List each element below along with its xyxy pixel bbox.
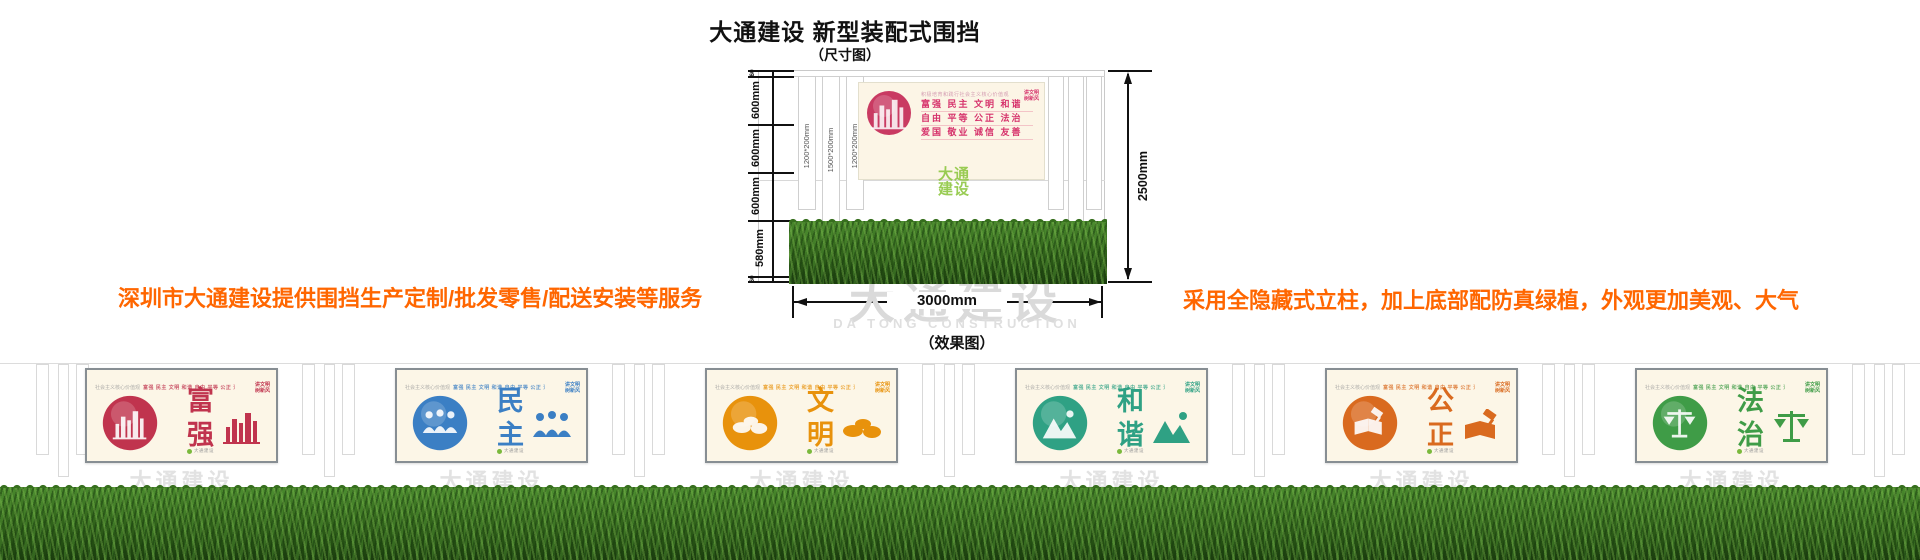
- fence-post: [1048, 76, 1064, 210]
- panel-top-header: 社会主义核心价值观: [405, 385, 450, 391]
- green-dot-icon: [1737, 449, 1742, 454]
- fence-post: [1086, 76, 1102, 210]
- fence-post-slat: [1892, 364, 1905, 455]
- panel-circle-graphic: [1651, 394, 1709, 452]
- panel-top-header: 社会主义核心价值观: [1335, 385, 1380, 391]
- green-dot-icon: [187, 449, 192, 454]
- panel-top-values: 社会主义核心价值观富强 民主 文明 和谐 自由 平等 公正 法治 爱国 敬业 诚…: [1025, 384, 1165, 391]
- segment-dim-label: 600mm: [749, 172, 763, 220]
- fence-post-slat: [612, 364, 625, 455]
- service-note-left: 深圳市大通建设提供围挡生产定制/批发零售/配送安装等服务: [118, 281, 702, 313]
- fence-post-slat: [1874, 364, 1885, 477]
- core-values-row: 自由 平等 公正 法治: [921, 112, 1033, 126]
- city-skyline-icon: [222, 409, 262, 445]
- billboard-frame: 社会主义核心价值观富强 民主 文明 和谐 自由 平等 公正 法治 爱国 敬业 诚…: [1015, 368, 1208, 463]
- green-dot-icon: [1117, 449, 1122, 454]
- fence-post-slat: [324, 364, 335, 477]
- brand-watermark-en: DA TONG CONSTRUCTION: [707, 316, 1207, 331]
- fence-top-edge: [0, 363, 1920, 364]
- total-height-dimension-line: [1127, 74, 1129, 279]
- fence-post-slat: [962, 364, 975, 455]
- civility-badge: 讲文明树新风: [255, 382, 270, 394]
- segment-dim-label: 600mm: [749, 76, 763, 124]
- civility-badge: 讲文明 树新风: [1024, 90, 1039, 102]
- total-height-label: 2500mm: [1136, 141, 1150, 211]
- service-note-right: 采用全隐藏式立柱，加上底部配防真绿植，外观更加美观、大气: [1183, 283, 1799, 315]
- segment-dim-label: 600mm: [749, 124, 763, 172]
- page-title: 大通建设 新型装配式围挡: [545, 13, 1145, 47]
- effect-diagram-label: （效果图）: [707, 332, 1207, 353]
- fence-post-slat: [634, 364, 645, 477]
- panel-brand-logo: 大通建设: [807, 448, 834, 454]
- fence-post-slat: [944, 364, 955, 477]
- panel-circle-graphic: [1341, 394, 1399, 452]
- green-dot-icon: [497, 449, 502, 454]
- panel-circle-graphic: [411, 394, 469, 452]
- billboard-frame: 社会主义核心价值观富强 民主 文明 和谐 自由 平等 公正 法治 爱国 敬业 诚…: [395, 368, 588, 463]
- papercut-circle-graphic: [865, 89, 913, 137]
- billboard-frame: 社会主义核心价值观富强 民主 文明 和谐 自由 平等 公正 法治 爱国 敬业 诚…: [705, 368, 898, 463]
- core-values-row: 爱国 敬业 诚信 友善: [921, 126, 1033, 140]
- datong-green-logo: 大通 建设: [938, 167, 970, 197]
- total-width-label: 3000mm: [887, 292, 1007, 309]
- panel-top-values: 社会主义核心价值观富强 民主 文明 和谐 自由 平等 公正 法治 爱国 敬业 诚…: [95, 384, 235, 391]
- panel-top-header: 社会主义核心价值观: [1025, 385, 1070, 391]
- poster-page: 大通建设 新型装配式围挡 （尺寸图） 大通建设 DA TONG CONSTRUC…: [0, 0, 1920, 560]
- panel-circle-graphic: [1031, 394, 1089, 452]
- artificial-grass-base-drawing: [789, 221, 1107, 284]
- panel-top-values: 社会主义核心价值观富强 民主 文明 和谐 自由 平等 公正 法治 爱国 敬业 诚…: [715, 384, 855, 391]
- civility-badge: 讲文明树新风: [875, 382, 890, 394]
- core-values-text-block: 积极培育和践行社会主义核心价值观 富强 民主 文明 和谐 自由 平等 公正 法治…: [921, 91, 1021, 140]
- fence-post-slat: [58, 364, 69, 477]
- fence-post-slat: [1852, 364, 1865, 455]
- civility-badge: 讲文明树新风: [1185, 382, 1200, 394]
- panel-top-values: 社会主义核心价值观富强 民主 文明 和谐 自由 平等 公正 法治 爱国 敬业 诚…: [1645, 384, 1785, 391]
- fence-post-slat: [342, 364, 355, 455]
- fence-post-slat: [1564, 364, 1575, 477]
- people-icon: [532, 409, 572, 445]
- clouds-icon: [842, 409, 882, 445]
- billboard-frame: 社会主义核心价值观富强 民主 文明 和谐 自由 平等 公正 法治 爱国 敬业 诚…: [85, 368, 278, 463]
- panel-top-header: 社会主义核心价值观: [715, 385, 760, 391]
- civility-badge: 讲文明树新风: [1495, 382, 1510, 394]
- green-dot-icon: [807, 449, 812, 454]
- fence-post-slat: [1272, 364, 1285, 455]
- scales-icon: [1772, 409, 1812, 445]
- panel-brand-logo: 大通建设: [1737, 448, 1764, 454]
- fence-post-slat: [302, 364, 315, 455]
- fence-post-slat: [1232, 364, 1245, 455]
- fence-post-slat: [1254, 364, 1265, 477]
- civility-badge: 讲文明树新风: [1805, 382, 1820, 394]
- panel-top-header: 社会主义核心价值观: [95, 385, 140, 391]
- post-size-label: 1200*200mm: [802, 91, 812, 201]
- fence-post-slat: [36, 364, 49, 455]
- mountains-icon: [1152, 409, 1192, 445]
- panel-top-header: 社会主义核心价值观: [1645, 385, 1690, 391]
- panel-brand-logo: 大通建设: [187, 448, 214, 454]
- post-size-label: 1500*200mm: [826, 95, 836, 205]
- core-values-row: 富强 民主 文明 和谐: [921, 98, 1033, 112]
- billboard-frame: 社会主义核心价值观富强 民主 文明 和谐 自由 平等 公正 法治 爱国 敬业 诚…: [1325, 368, 1518, 463]
- fence-post-slat: [652, 364, 665, 455]
- panel-brand-logo: 大通建设: [1427, 448, 1454, 454]
- panel-top-values: 社会主义核心价值观富强 民主 文明 和谐 自由 平等 公正 法治 爱国 敬业 诚…: [1335, 384, 1475, 391]
- fence-post-slat: [922, 364, 935, 455]
- height-dimension-line: [772, 70, 774, 283]
- panel-circle-graphic: [101, 394, 159, 452]
- book-gavel-icon: [1462, 409, 1502, 445]
- civility-badge: 讲文明树新风: [565, 382, 580, 394]
- panel-brand-logo: 大通建设: [497, 448, 524, 454]
- artificial-grass-hedge: [0, 487, 1920, 560]
- billboard-frame: 社会主义核心价值观富强 民主 文明 和谐 自由 平等 公正 法治 爱国 敬业 诚…: [1635, 368, 1828, 463]
- core-values-header: 积极培育和践行社会主义核心价值观: [921, 91, 1017, 98]
- fence-post-slat: [1582, 364, 1595, 455]
- arrowhead-icon: [1124, 72, 1132, 84]
- panel-circle-graphic: [721, 394, 779, 452]
- panel-top-values: 社会主义核心价值观富强 民主 文明 和谐 自由 平等 公正 法治 爱国 敬业 诚…: [405, 384, 545, 391]
- fence-post-slat: [1542, 364, 1555, 455]
- green-dot-icon: [1427, 449, 1432, 454]
- size-diagram-label: （尺寸图）: [545, 45, 1145, 65]
- panel-brand-logo: 大通建设: [1117, 448, 1144, 454]
